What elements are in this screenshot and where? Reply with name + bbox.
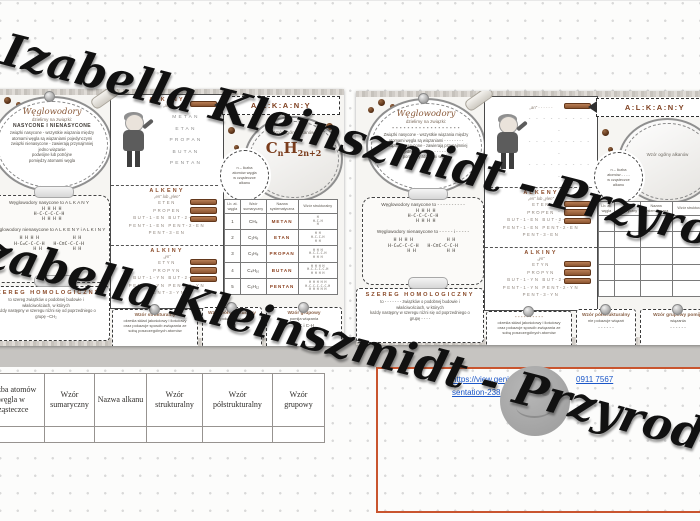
table-row: 4C₄H₁₀BUTANH H H H H-C-C-C-C-H H H H H (225, 262, 338, 278)
decor-dot (4, 97, 11, 104)
pushpin-icon (523, 306, 534, 317)
blank-alkanes-doc-table: Liczba atomów węgla w cząsteczce Wzór su… (0, 373, 325, 443)
oval-dashed-border (0, 101, 108, 188)
table-row: 3C₃H₈PROPANH H H H-C-C-C-H H H H (225, 246, 338, 262)
decor-dot (234, 145, 239, 150)
decor-dot (602, 129, 609, 136)
hydrocarbons-oval: Węglowodory dzielimy na związki: NASYCON… (0, 96, 112, 192)
alkyne-section-title: ALKINY (485, 248, 597, 256)
alkyne-list-section: ALKINY „yn” ETYN PROPYN BUT-1-YN BUT-2-Y… (485, 248, 597, 305)
pushpin-icon (418, 93, 429, 104)
boy-illustration (117, 113, 153, 175)
alkanes-table: Lb. at. węgla Wzór sumaryczny Nazwa syst… (224, 199, 338, 295)
table-row (599, 280, 700, 296)
decor-bar (564, 103, 591, 109)
decor-bars (190, 199, 217, 224)
pushpin-icon (600, 304, 611, 315)
table-row: 1CH₄METANH H-C-H H (225, 214, 338, 230)
alkyne-structural-formula: H H H-C≡C-C-C-H H H (428, 238, 458, 254)
alkane-structural-formula: H H H H H-C-C-C-C-H H H H H (408, 209, 438, 225)
decor-dot (378, 99, 385, 106)
homolog-series-title: SZEREG HOMOLOGICZNY (357, 292, 483, 298)
alkyne-section-title: ALKINY (111, 246, 223, 254)
table-row (599, 264, 700, 280)
alkene-section-title: ALKENY (111, 186, 223, 194)
connector-pill (34, 186, 74, 198)
ribbon-label: A:L:K:A:N:Y (625, 103, 685, 112)
n-definition-circle: n – liczba atomów węgla w cząsteczce alk… (220, 150, 269, 201)
alkane-structural-formula: H H H H H-C-C-C-C-H H H H H (34, 207, 64, 223)
alkany-ribbon: A:L:K:A:N:Y (596, 98, 700, 117)
saturated-line: Węglowodory nasycone to - - - - - - - - … (363, 202, 483, 207)
document-canvas: 2 Węglowodory dzielimy na związki: NASYC… (0, 0, 700, 521)
n-definition-text: n – liczba atomów węgla w cząsteczce alk… (232, 166, 256, 186)
ribbon-notch (588, 101, 597, 113)
unsaturated-line: Węglowodory nienasycone to - - - - - i -… (363, 229, 483, 234)
doc-table-empty-row (0, 427, 325, 443)
doc-table-header-row: Liczba atomów węgla w cząsteczce Wzór su… (0, 374, 325, 427)
homolog-series-text: to - - - - - - - związków o podobnej bud… (357, 299, 483, 321)
saturated-line: Węglowodory nasycone to A L K A N Y (0, 200, 109, 205)
connector-pill (408, 277, 448, 289)
table-row: 2C₂H₆ETANH H H-C-C-H H H (225, 230, 338, 246)
connector-pill (408, 188, 448, 200)
alkene-structural-formula: H H H H H-C=C-C-C-H H H (388, 238, 418, 254)
table-header-row: Lb. at. węgla Wzór sumaryczny Nazwa syst… (225, 200, 338, 214)
group-formula-banner: Wzór grupowy pomija wiązania - - - - - - (640, 309, 700, 345)
pushpin-icon (672, 304, 683, 315)
decor-bars (564, 261, 591, 286)
alkene-list-section: ALKENY „en” lub „ylen” ETEN PROPEN BUT-1… (111, 186, 223, 246)
pushpin-icon (44, 91, 55, 102)
decor-dot (608, 147, 613, 152)
saturated-box: Węglowodory nasycone to - - - - - - - - … (362, 197, 484, 285)
